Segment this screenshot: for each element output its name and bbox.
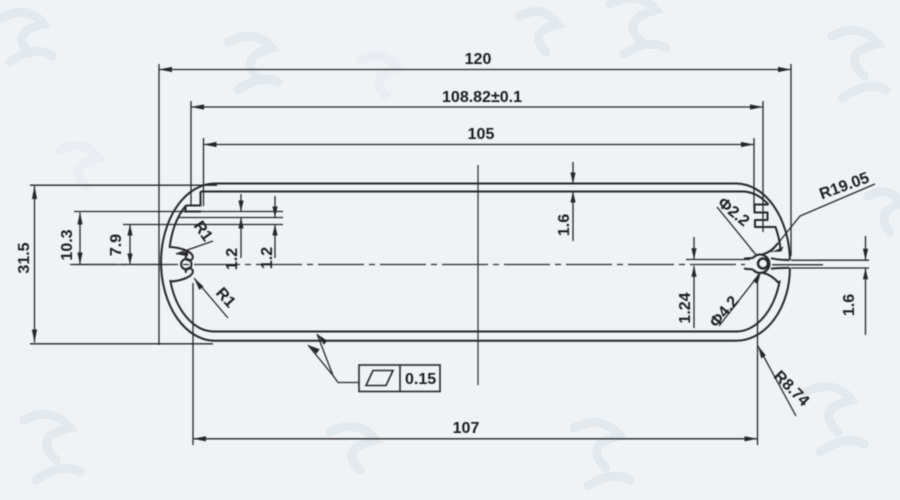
svg-text:7.9: 7.9 [108, 234, 125, 256]
svg-text:1.6: 1.6 [556, 214, 573, 236]
svg-text:0.15: 0.15 [405, 371, 436, 388]
svg-text:1.2: 1.2 [224, 248, 241, 270]
svg-text:105: 105 [468, 126, 495, 143]
svg-text:120: 120 [465, 51, 492, 68]
svg-text:108.82±0.1: 108.82±0.1 [442, 89, 522, 106]
svg-text:1.2: 1.2 [259, 247, 276, 269]
svg-text:1.24: 1.24 [677, 292, 694, 323]
svg-text:107: 107 [453, 420, 480, 437]
svg-text:10.3: 10.3 [59, 229, 76, 260]
svg-text:31.5: 31.5 [16, 242, 33, 273]
svg-text:1.6: 1.6 [841, 294, 858, 316]
